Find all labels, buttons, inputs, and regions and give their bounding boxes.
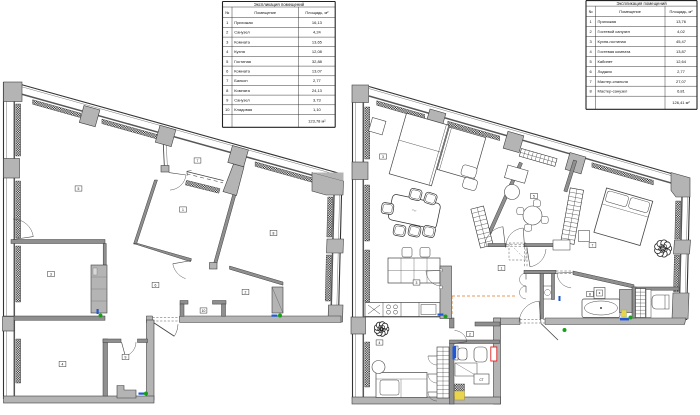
svg-text:Гостевой санузел: Гостевой санузел: [598, 29, 631, 34]
svg-text:13,07: 13,07: [312, 68, 323, 73]
svg-text:5: 5: [533, 194, 535, 198]
svg-text:10: 10: [225, 107, 230, 112]
svg-text:2,77: 2,77: [677, 69, 686, 74]
svg-text:Помещение: Помещение: [619, 9, 641, 14]
svg-text:8: 8: [273, 231, 275, 235]
svg-text:12,08: 12,08: [312, 49, 323, 54]
svg-text:Мастер-санузел: Мастер-санузел: [598, 89, 628, 94]
svg-text:Лоджия: Лоджия: [598, 69, 612, 74]
svg-text:24,13: 24,13: [312, 88, 323, 93]
svg-text:7: 7: [197, 159, 199, 163]
svg-text:16,13: 16,13: [312, 20, 323, 25]
svg-text:Кабинет: Кабинет: [598, 59, 613, 64]
svg-text:13,76: 13,76: [676, 19, 687, 24]
svg-text:2: 2: [245, 290, 247, 294]
svg-text:3: 3: [382, 155, 384, 159]
svg-text:27,07: 27,07: [676, 79, 687, 84]
svg-text:№: №: [225, 10, 229, 15]
svg-text:6,81: 6,81: [677, 89, 686, 94]
svg-text:Мастер-спальня: Мастер-спальня: [598, 79, 628, 84]
svg-text:Прихожая: Прихожая: [234, 20, 253, 25]
svg-text:Гостиная: Гостиная: [234, 59, 251, 64]
svg-text:6: 6: [155, 283, 157, 287]
svg-text:3,73: 3,73: [313, 98, 322, 103]
svg-text:13,87: 13,87: [676, 49, 687, 54]
svg-text:Экспликация помещений: Экспликация помещений: [616, 1, 667, 6]
svg-text:СТ: СТ: [479, 378, 483, 382]
svg-text:12,64: 12,64: [676, 59, 687, 64]
svg-text:Кладовая: Кладовая: [234, 107, 252, 112]
svg-text:2,77: 2,77: [313, 78, 322, 83]
svg-text:3: 3: [416, 281, 418, 285]
svg-text:123,78 м²: 123,78 м²: [308, 118, 326, 123]
svg-text:Кухня-гостиная: Кухня-гостиная: [598, 39, 626, 44]
svg-text:13,65: 13,65: [312, 39, 323, 44]
svg-text:45,47: 45,47: [676, 39, 687, 44]
svg-text:126,41 м²: 126,41 м²: [672, 100, 690, 105]
svg-text:Прихожая: Прихожая: [598, 19, 617, 24]
svg-text:32,88: 32,88: [312, 59, 323, 64]
svg-text:Кухня: Кухня: [234, 49, 245, 54]
svg-text:Комната: Комната: [234, 39, 250, 44]
svg-text:4,24: 4,24: [313, 30, 322, 35]
svg-text:Помещение: Помещение: [254, 10, 276, 15]
svg-text:Площадь, м²: Площадь, м²: [305, 10, 329, 15]
svg-text:4: 4: [379, 341, 381, 345]
svg-text:Гостевая комната: Гостевая комната: [598, 49, 632, 54]
svg-text:Санузел: Санузел: [234, 98, 250, 103]
svg-text:Балкон: Балкон: [234, 78, 247, 83]
svg-text:Комната: Комната: [234, 68, 250, 73]
svg-text:Комната: Комната: [234, 88, 250, 93]
svg-text:4,02: 4,02: [677, 29, 686, 34]
svg-text:2: 2: [469, 332, 471, 336]
svg-text:Экспликация помещений: Экспликация помещений: [254, 2, 305, 7]
svg-text:3: 3: [50, 272, 52, 276]
svg-text:1: 1: [182, 208, 184, 212]
svg-text:1,10: 1,10: [313, 107, 322, 112]
svg-text:8: 8: [589, 292, 591, 296]
svg-text:1: 1: [501, 266, 503, 270]
svg-text:Санузел: Санузел: [234, 30, 250, 35]
svg-text:№: №: [589, 9, 593, 14]
svg-text:Площадь, м²: Площадь, м²: [669, 9, 693, 14]
svg-text:9: 9: [125, 355, 127, 359]
svg-text:4: 4: [62, 362, 64, 366]
svg-text:5: 5: [78, 187, 80, 191]
svg-text:10: 10: [202, 309, 206, 313]
svg-text:7: 7: [592, 243, 594, 247]
